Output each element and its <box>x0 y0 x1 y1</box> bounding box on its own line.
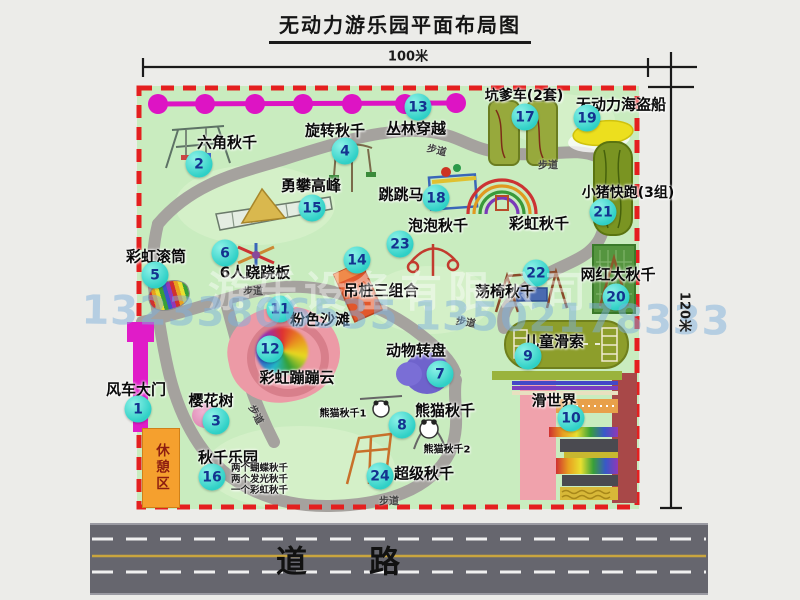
attraction-2-label: 六角秋千 <box>197 132 257 153</box>
road-label: 道 路 <box>276 537 400 582</box>
attraction-12-label: 彩虹蹦蹦云 <box>259 367 334 388</box>
attraction-21-badge: 21 <box>590 199 617 226</box>
attraction-12-badge: 12 <box>257 336 284 363</box>
extra-label-1: 熊猫秋千1 <box>320 405 367 420</box>
page-title: 无动力游乐园平面布局图 <box>269 9 531 44</box>
attraction-14-label: 吊桩三组合 <box>343 280 418 301</box>
attraction-24-badge: 24 <box>367 463 394 490</box>
attraction-23-badge: 23 <box>387 231 414 258</box>
attraction-5-badge: 5 <box>142 262 169 289</box>
rest-area: 休憩区 <box>142 428 180 508</box>
rest-area-label: 休憩区 <box>151 443 171 493</box>
trail-label-1: 步道 <box>538 157 558 172</box>
attraction-15-badge: 15 <box>299 195 326 222</box>
attraction-7-badge: 7 <box>427 361 454 388</box>
attraction-4-label: 旋转秋千 <box>305 120 365 141</box>
trail-label-3: 步道 <box>455 312 477 330</box>
extra-label-0: 彩虹秋千 <box>509 213 569 234</box>
attraction-8-label: 熊猫秋千 <box>415 400 475 421</box>
attraction-11-label: 粉色沙滩 <box>290 309 350 330</box>
attraction-13-badge: 13 <box>405 94 432 121</box>
height-dimension-label: 120米 <box>677 292 696 332</box>
attraction-19-badge: 19 <box>574 105 601 132</box>
attraction-9-badge: 9 <box>515 343 542 370</box>
swing-park-note-2: 一个彩虹秋千 <box>231 482 288 496</box>
extra-label-2: 熊猫秋千2 <box>424 441 471 456</box>
attraction-11-badge: 11 <box>267 296 294 323</box>
attraction-17-label: 坑爹车(2套) <box>485 85 564 105</box>
attraction-16-badge: 16 <box>199 464 226 491</box>
attraction-24-label: 超级秋千 <box>394 463 454 484</box>
attraction-3-badge: 3 <box>203 408 230 435</box>
attraction-22-label: 荡椅秋千 <box>475 281 535 302</box>
attraction-8-badge: 8 <box>389 412 416 439</box>
attraction-2-badge: 2 <box>186 151 213 178</box>
animal-carousel-disc-small <box>396 362 422 386</box>
attraction-17-badge: 17 <box>512 104 539 131</box>
attraction-7-label: 动物转盘 <box>386 340 446 361</box>
trail-label-2: 步道 <box>243 283 263 298</box>
trail-label-5: 步道 <box>379 493 399 508</box>
attraction-18-badge: 18 <box>423 185 450 212</box>
attraction-4-badge: 4 <box>332 138 359 165</box>
attraction-6-badge: 6 <box>212 240 239 267</box>
attraction-18-label: 跳跳马 <box>378 184 423 205</box>
attraction-10-badge: 10 <box>558 405 585 432</box>
attraction-15-label: 勇攀高峰 <box>281 175 341 196</box>
attraction-1-badge: 1 <box>125 396 152 423</box>
attraction-14-badge: 14 <box>344 247 371 274</box>
attraction-22-badge: 22 <box>523 260 550 287</box>
attraction-20-label: 网红大秋千 <box>580 264 655 285</box>
attraction-20-badge: 20 <box>603 284 630 311</box>
attraction-13-label: 丛林穿越 <box>386 118 446 139</box>
attraction-23-label: 泡泡秋千 <box>408 215 468 236</box>
attraction-21-label: 小猪快跑(3组) <box>582 182 675 202</box>
park-layout-map: 无动力游乐园平面布局图 100米 120米 <box>0 0 800 600</box>
width-dimension-label: 100米 <box>388 46 428 65</box>
